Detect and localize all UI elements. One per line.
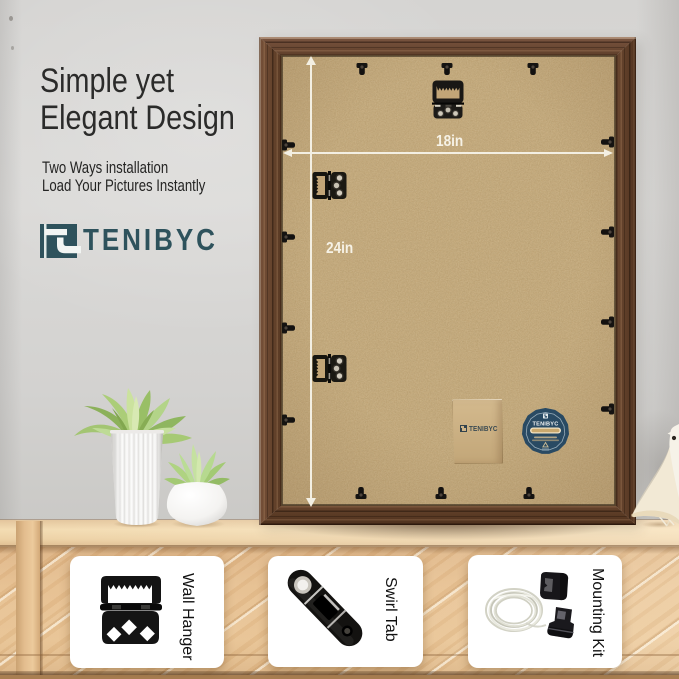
svg-text:TENIBYC: TENIBYC xyxy=(533,422,559,428)
